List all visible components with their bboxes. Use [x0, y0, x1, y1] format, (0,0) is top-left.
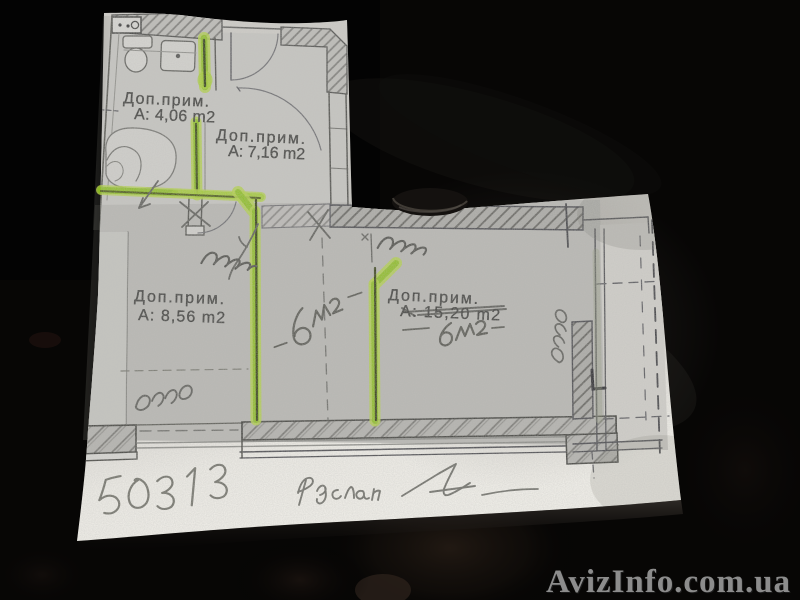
svg-text:AvizInfo.com.ua: AvizInfo.com.ua: [546, 564, 790, 600]
